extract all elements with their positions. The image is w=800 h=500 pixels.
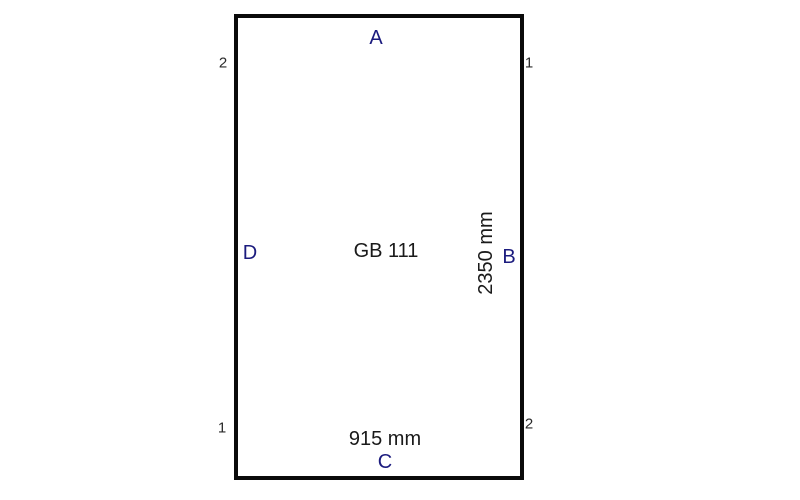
- edge-label-top: A: [369, 28, 382, 48]
- width-dimension-label: 915 mm: [349, 429, 421, 449]
- height-dimension-label: 2350 mm: [476, 211, 496, 294]
- edge-label-bottom: C: [378, 452, 392, 472]
- corner-number-bottom-right: 2: [525, 417, 533, 432]
- edge-label-right: B: [502, 247, 515, 267]
- corner-number-top-left: 2: [219, 56, 227, 71]
- corner-number-bottom-left: 1: [218, 421, 226, 436]
- diagram-canvas: A B C D GB 111 2350 mm 915 mm 2 1 1 2: [0, 0, 800, 500]
- corner-number-top-right: 1: [525, 56, 533, 71]
- edge-label-left: D: [243, 243, 257, 263]
- product-code-label: GB 111: [354, 241, 419, 261]
